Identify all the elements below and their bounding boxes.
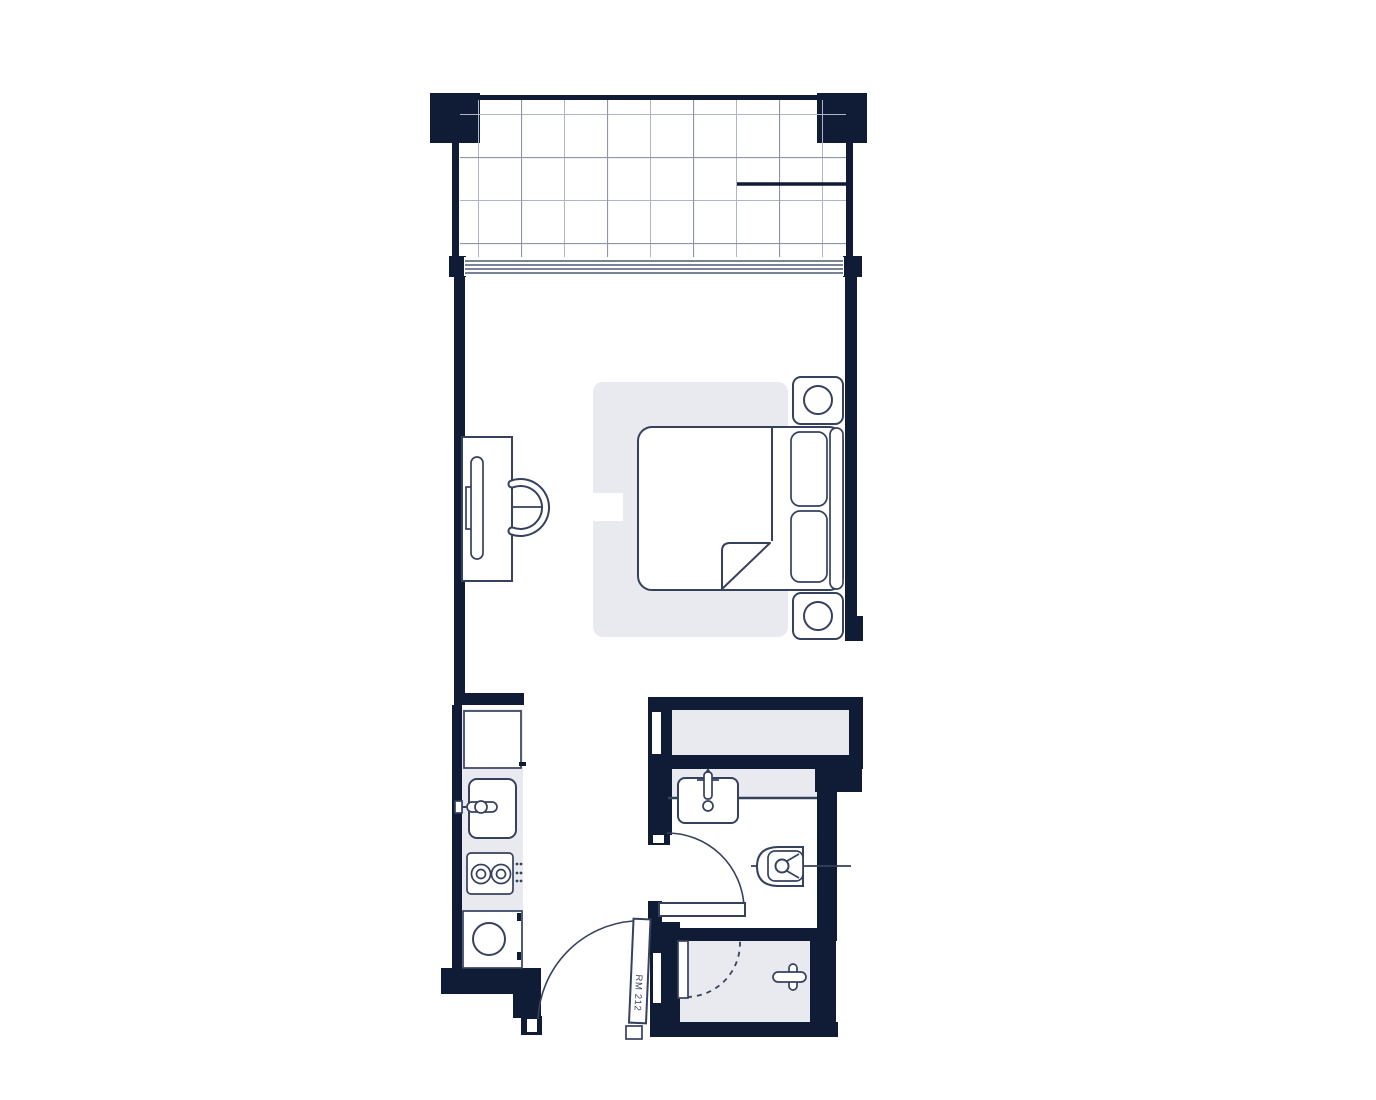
- nightstand: [793, 377, 843, 424]
- bathroom-door: [659, 833, 745, 916]
- faucet-spout: [704, 772, 712, 799]
- double-bed: [638, 427, 843, 590]
- wall-hung-toilet: [751, 847, 851, 886]
- door-leaf: [659, 903, 745, 916]
- kitchen: [455, 711, 526, 968]
- pillow: [791, 511, 827, 582]
- shower-rail: [773, 964, 806, 990]
- balcony-tile-grid-accent: [460, 100, 846, 258]
- bathroom: [659, 768, 851, 916]
- nightstand-top: [793, 377, 843, 424]
- headboard: [830, 428, 843, 589]
- fixture-linework: RM 212: [0, 0, 1376, 1100]
- nightstand: [793, 593, 843, 639]
- living-area: [462, 377, 843, 639]
- shower-door-swing-arc: [687, 941, 740, 997]
- faucet-knob: [475, 801, 487, 813]
- refrigerator: [464, 711, 521, 768]
- cooktop-knobs: [516, 863, 523, 883]
- desk-shelf: [471, 457, 483, 559]
- entry-door-swing-arc: [538, 921, 633, 1019]
- door-swing-arc: [667, 833, 744, 907]
- pillow: [791, 432, 827, 506]
- shower-door-leaf: [678, 941, 688, 998]
- washer-control: [517, 952, 521, 960]
- refrigerator-handle: [519, 762, 526, 766]
- washer: [463, 911, 522, 968]
- toilet-drain: [776, 860, 789, 873]
- washer-body: [463, 911, 522, 968]
- balcony: [460, 100, 851, 276]
- shower-bar: [773, 972, 806, 982]
- two-burner-cooktop: [467, 853, 522, 894]
- room-number-label: RM 212: [632, 974, 645, 1011]
- washer-control: [517, 913, 521, 921]
- floor-plan: RM 212: [0, 0, 1376, 1100]
- faucet-base: [455, 801, 462, 813]
- kitchen-faucet: [455, 801, 497, 813]
- entry-door: RM 212: [629, 919, 651, 1024]
- desk: [462, 437, 548, 581]
- nightstand-bottom: [793, 593, 843, 639]
- entry-door-stop-right: [626, 1026, 642, 1039]
- shower-room: [678, 941, 806, 998]
- sliding-glass-door: [464, 257, 844, 276]
- area-rug-notch: [589, 493, 623, 521]
- bathroom-sink: [678, 768, 738, 823]
- entry: RM 212: [538, 919, 651, 1039]
